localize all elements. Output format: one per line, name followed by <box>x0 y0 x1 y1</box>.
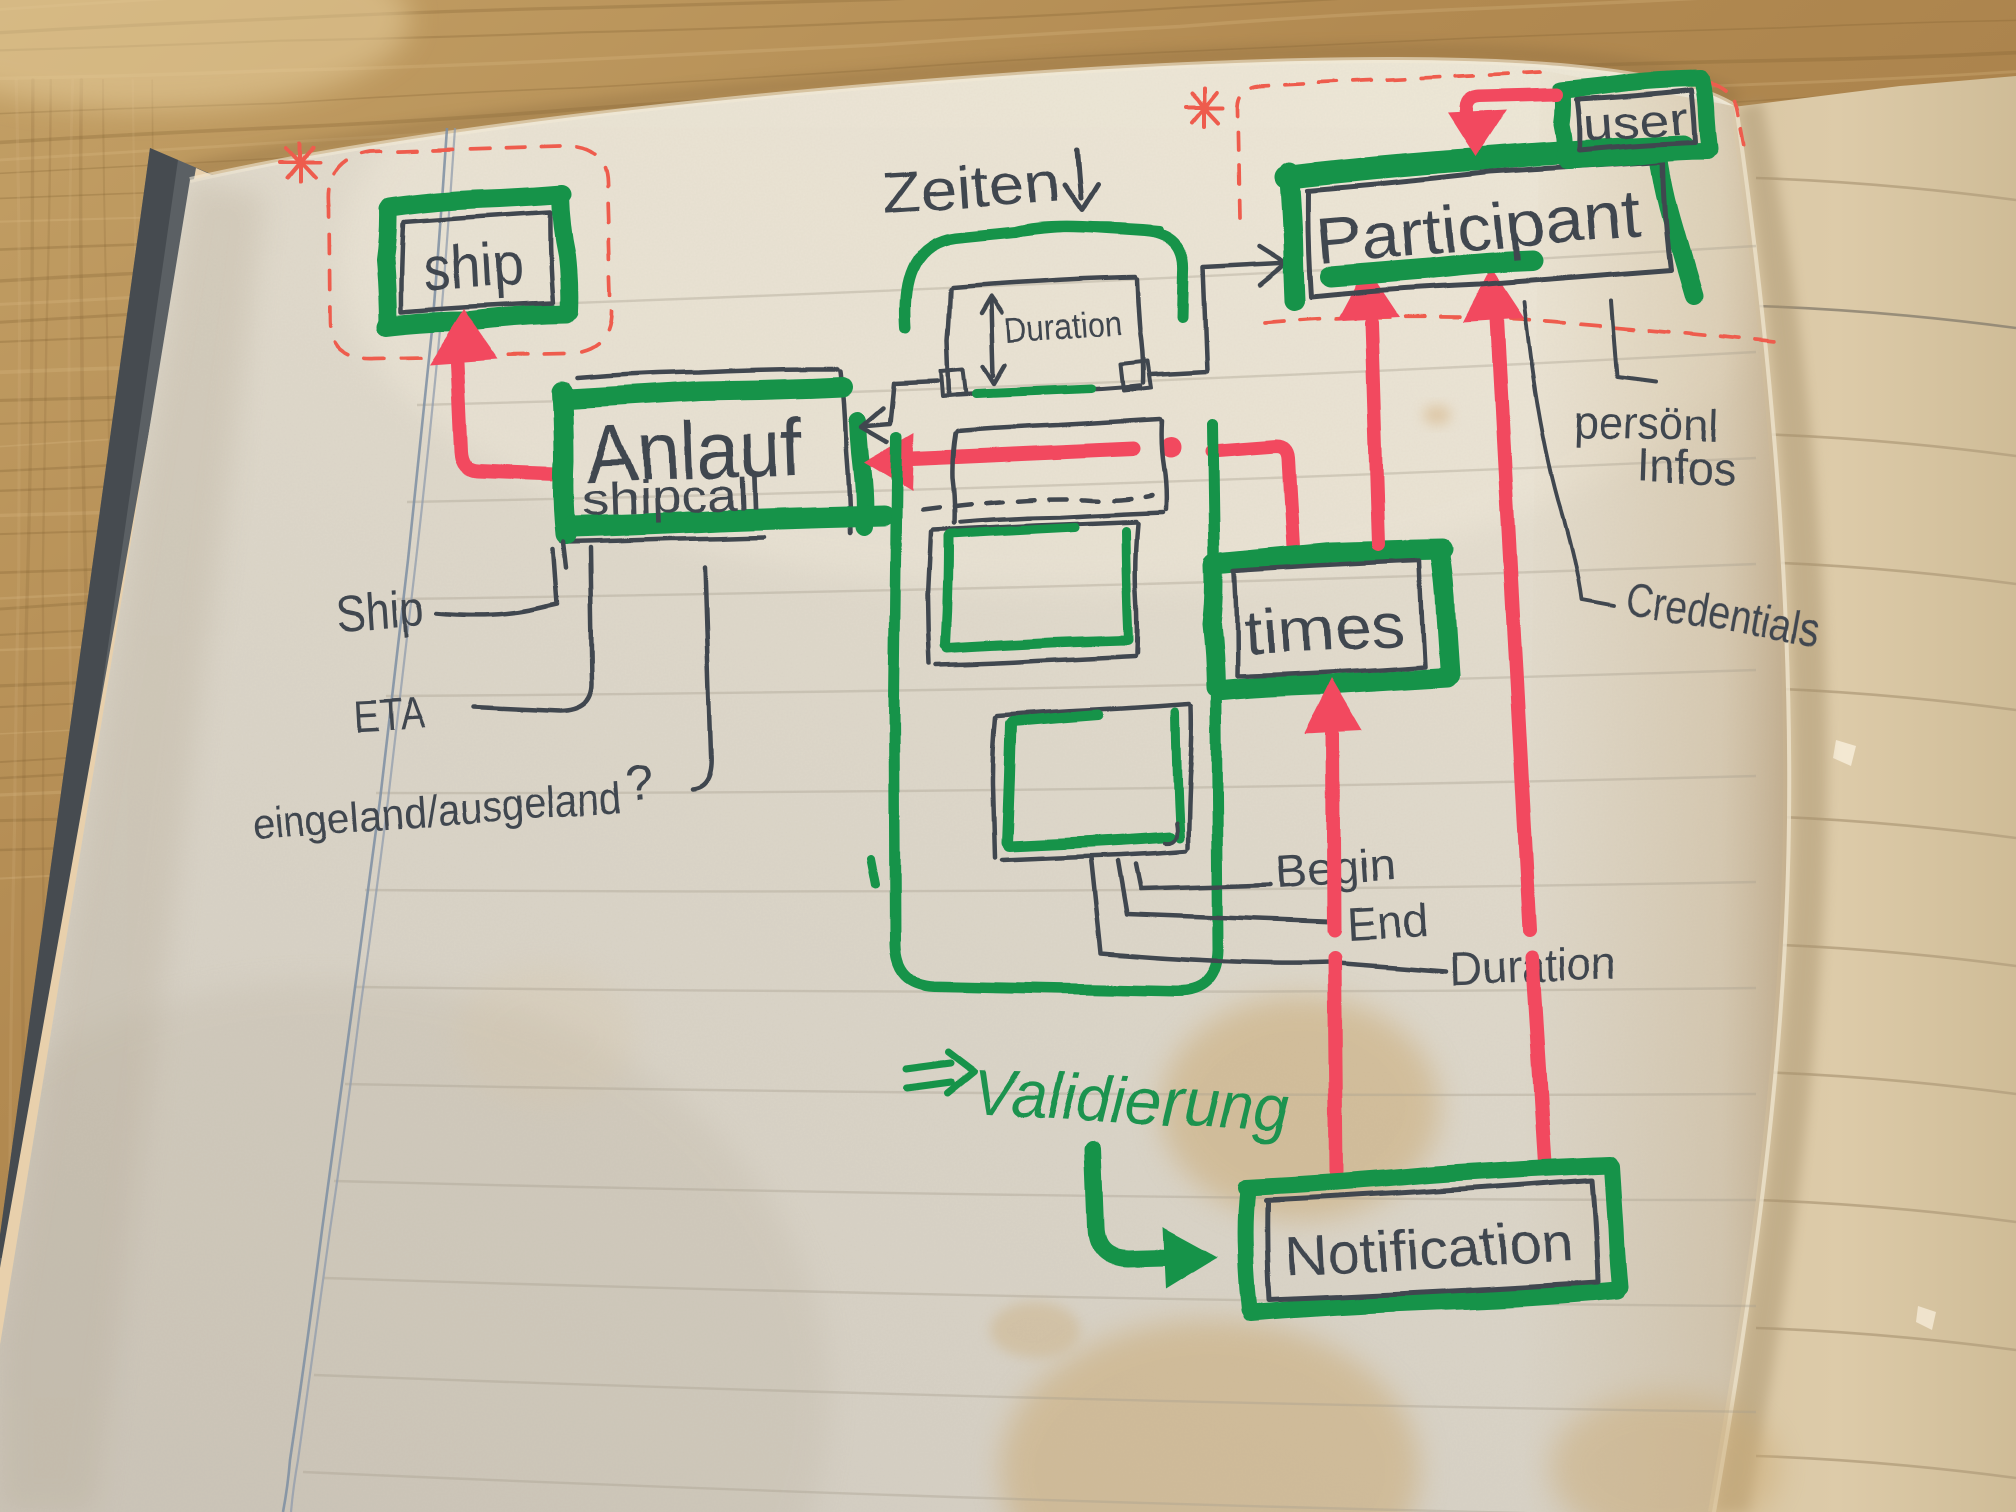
svg-text:Ship: Ship <box>334 580 426 642</box>
svg-text:user: user <box>1581 91 1690 150</box>
svg-text:shipcall: shipcall <box>582 468 762 526</box>
svg-text:?: ? <box>623 753 656 813</box>
svg-text:Zeiten: Zeiten <box>880 149 1062 226</box>
svg-text:Infos: Infos <box>1637 439 1737 494</box>
svg-text:times: times <box>1242 591 1405 668</box>
svg-text:End: End <box>1345 894 1430 950</box>
svg-text:ETA: ETA <box>353 687 426 743</box>
svg-text:ship: ship <box>421 230 524 304</box>
svg-text:Duration: Duration <box>1003 303 1123 350</box>
